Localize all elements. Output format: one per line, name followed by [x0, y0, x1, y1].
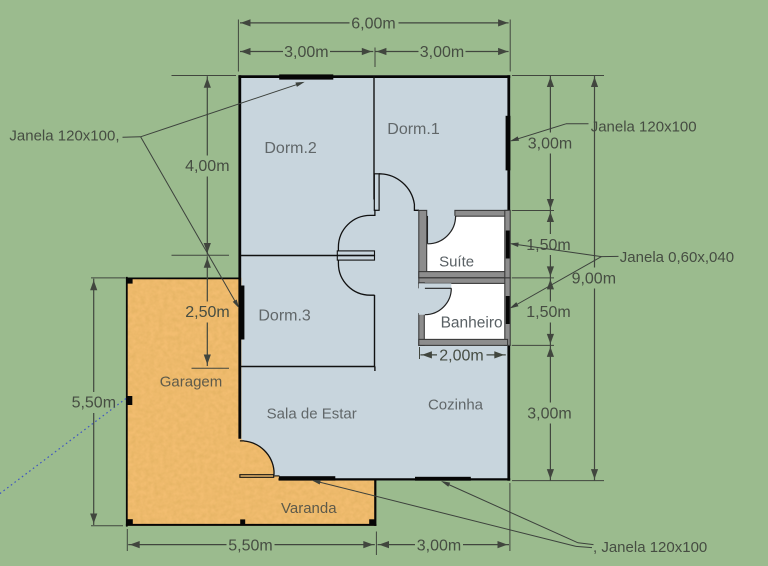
svg-text:5,50m: 5,50m [72, 395, 116, 412]
svg-text:5,50m: 5,50m [228, 537, 272, 554]
svg-text:Janela 120x100,: Janela 120x100, [9, 128, 119, 145]
svg-text:Suíte: Suíte [439, 253, 474, 270]
svg-text:3,00m: 3,00m [284, 44, 328, 61]
svg-text:3,00m: 3,00m [417, 537, 461, 554]
svg-text:Janela 120x100: Janela 120x100 [591, 119, 697, 136]
svg-text:Dorm.3: Dorm.3 [258, 307, 311, 324]
svg-text:2,50m: 2,50m [185, 304, 229, 321]
svg-text:, Janela 120x100: , Janela 120x100 [593, 539, 707, 556]
svg-text:9,00m: 9,00m [572, 271, 616, 288]
svg-text:6,00m: 6,00m [351, 16, 395, 33]
svg-text:2,00m: 2,00m [439, 348, 483, 365]
svg-text:3,00m: 3,00m [420, 44, 464, 61]
svg-text:Garagem: Garagem [160, 373, 223, 390]
svg-text:Janela 0,60x,040: Janela 0,60x,040 [620, 249, 734, 266]
svg-text:Varanda: Varanda [281, 500, 337, 517]
svg-text:1,50m: 1,50m [526, 304, 570, 321]
svg-text:4,00m: 4,00m [185, 158, 229, 175]
svg-text:Banheiro: Banheiro [441, 315, 503, 332]
svg-text:Dorm.2: Dorm.2 [264, 140, 317, 157]
svg-text:Sala de Estar: Sala de Estar [267, 406, 357, 423]
svg-text:3,00m: 3,00m [528, 136, 572, 153]
svg-text:Cozinha: Cozinha [428, 396, 484, 413]
svg-text:Dorm.1: Dorm.1 [387, 121, 440, 138]
svg-text:3,00m: 3,00m [527, 406, 571, 423]
